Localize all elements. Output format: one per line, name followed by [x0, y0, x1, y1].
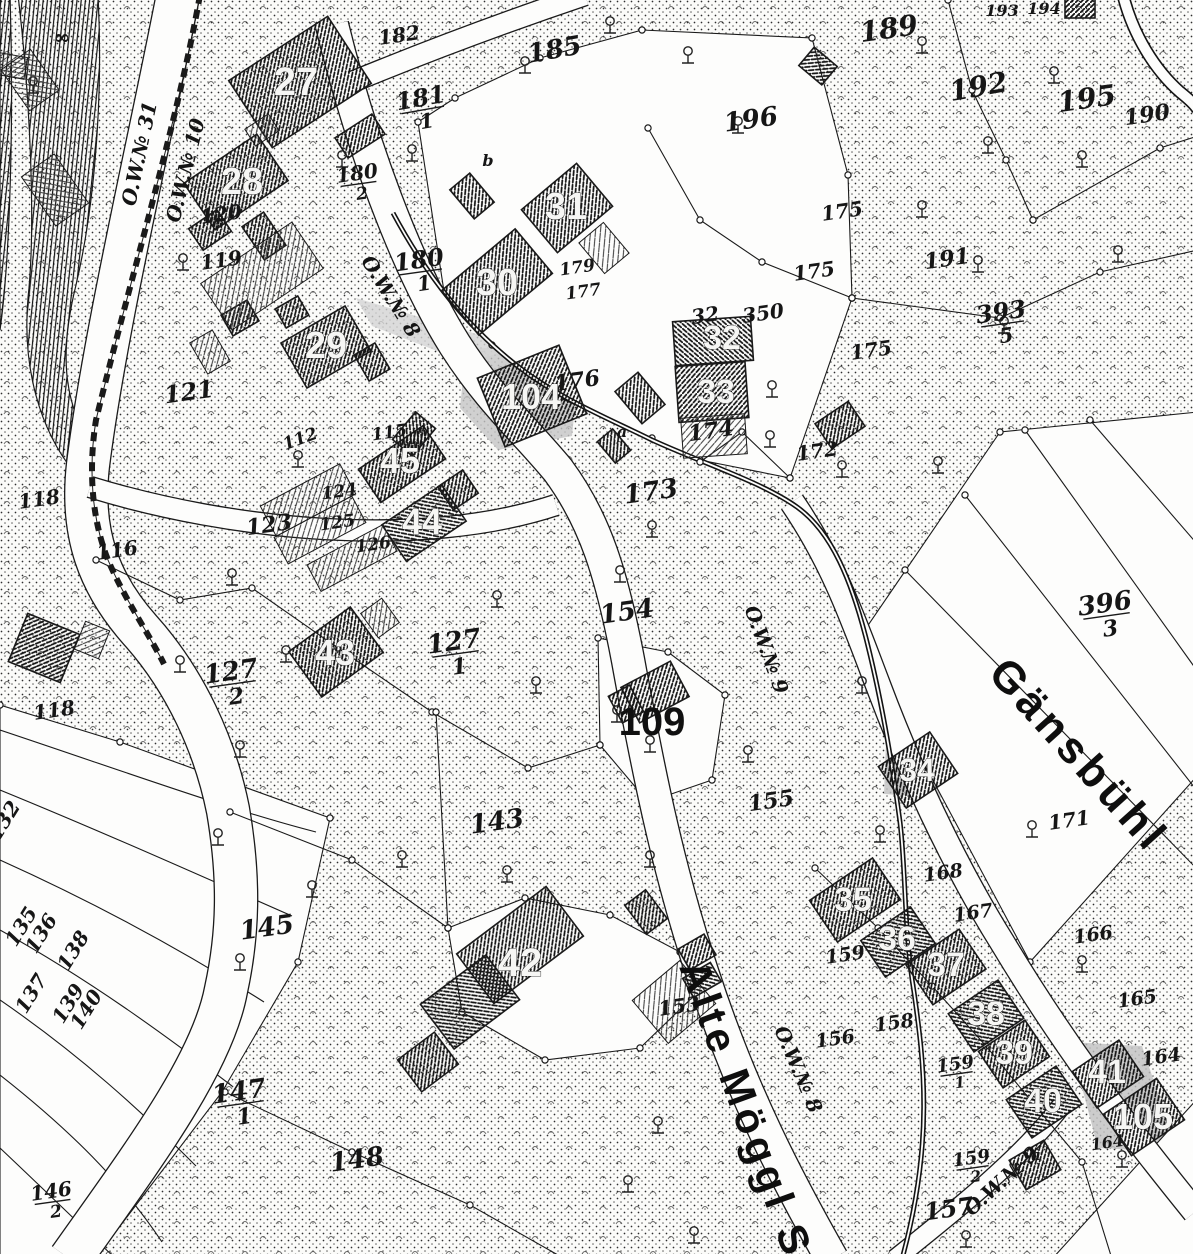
building-number: 39 [995, 1034, 1033, 1072]
building-number: 41 [1088, 1053, 1126, 1091]
survey-point [295, 959, 301, 965]
survey-point [1030, 217, 1036, 223]
building-number: 33 [697, 373, 735, 411]
survey-point [1022, 427, 1028, 433]
survey-point [607, 912, 613, 918]
building-number: 30 [476, 262, 518, 304]
letter-label: b [482, 151, 493, 170]
parcel-number: 193 [985, 1, 1018, 20]
survey-point [433, 709, 439, 715]
building-number: 109 [619, 700, 686, 744]
building-number: 43 [315, 632, 355, 673]
survey-point [1079, 1159, 1085, 1165]
building-number: 28 [221, 161, 263, 203]
building-number: 40 [1024, 1082, 1062, 1120]
survey-point [722, 692, 728, 698]
building-number: 104 [501, 376, 561, 417]
building-number: 45 [380, 440, 420, 481]
letter-label: a [617, 422, 627, 441]
survey-point [709, 777, 715, 783]
survey-point [665, 649, 671, 655]
survey-point [542, 1057, 548, 1063]
survey-point [997, 429, 1003, 435]
survey-point [697, 459, 703, 465]
survey-point [902, 567, 908, 573]
building-number: 32 [703, 319, 741, 357]
survey-point [697, 217, 703, 223]
building [1065, 0, 1095, 18]
survey-point [1157, 145, 1163, 151]
survey-point [0, 702, 3, 708]
survey-point [962, 492, 968, 498]
building-number: 35 [834, 881, 872, 919]
survey-point [595, 635, 601, 641]
parcel-number: 194 [1027, 0, 1060, 18]
survey-point [945, 0, 951, 3]
survey-point [637, 1045, 643, 1051]
building-number: 31 [545, 186, 587, 228]
survey-point [452, 95, 458, 101]
building-number: 105 [1113, 1096, 1173, 1137]
building-number: 44 [402, 501, 442, 542]
building-number: 42 [498, 941, 543, 985]
survey-point [249, 585, 255, 591]
survey-point [467, 1202, 473, 1208]
survey-point [812, 865, 818, 871]
building-number: 37 [927, 946, 965, 984]
survey-point [117, 739, 123, 745]
outbuilding [0, 53, 28, 80]
building-number: 27 [274, 60, 319, 104]
survey-point [349, 857, 355, 863]
survey-point [1097, 269, 1103, 275]
survey-point [809, 35, 815, 41]
cadastral-map-svg: 1851811182196189192193194195190191175175… [0, 0, 1193, 1254]
building-number: 29 [305, 325, 347, 367]
survey-point [639, 27, 645, 33]
survey-point [227, 809, 233, 815]
survey-point [787, 475, 793, 481]
survey-point [1003, 157, 1009, 163]
survey-point [597, 742, 603, 748]
survey-point [645, 125, 651, 131]
parcel-label: 194 [1027, 0, 1060, 18]
building-number: 34 [899, 752, 935, 788]
survey-point [177, 597, 183, 603]
survey-point [759, 259, 765, 265]
parcel-label: 193 [985, 1, 1018, 20]
building-number: 36 [878, 920, 916, 958]
building-number: 38 [967, 995, 1005, 1033]
survey-point [327, 815, 333, 821]
survey-point [525, 765, 531, 771]
survey-point [1087, 417, 1093, 423]
letter-label: ∞ [54, 25, 71, 49]
survey-point [849, 295, 855, 301]
survey-point [845, 172, 851, 178]
survey-point [445, 925, 451, 931]
cadastral-map: 1851811182196189192193194195190191175175… [0, 0, 1193, 1254]
